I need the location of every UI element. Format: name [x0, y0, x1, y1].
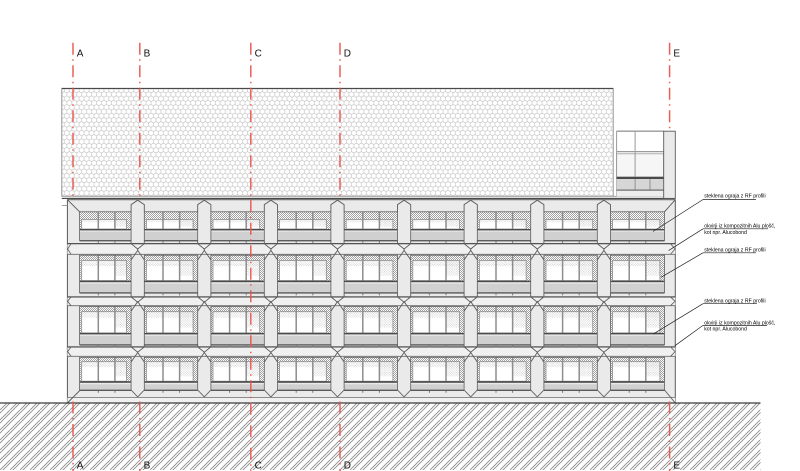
svg-text:kot npr. Alucobond: kot npr. Alucobond	[704, 230, 747, 236]
svg-text:E: E	[673, 461, 680, 471]
svg-text:E: E	[673, 49, 680, 60]
svg-text:C: C	[255, 49, 262, 60]
svg-text:D: D	[344, 461, 351, 471]
svg-text:B: B	[144, 461, 151, 471]
svg-text:steklena ograja z RF profili: steklena ograja z RF profili	[704, 194, 765, 200]
svg-text:A: A	[77, 49, 84, 60]
svg-text:A: A	[77, 461, 84, 471]
svg-text:kot npr. Alucobond: kot npr. Alucobond	[704, 327, 747, 333]
svg-text:D: D	[344, 49, 351, 60]
svg-text:B: B	[144, 49, 151, 60]
svg-text:C: C	[255, 461, 262, 471]
